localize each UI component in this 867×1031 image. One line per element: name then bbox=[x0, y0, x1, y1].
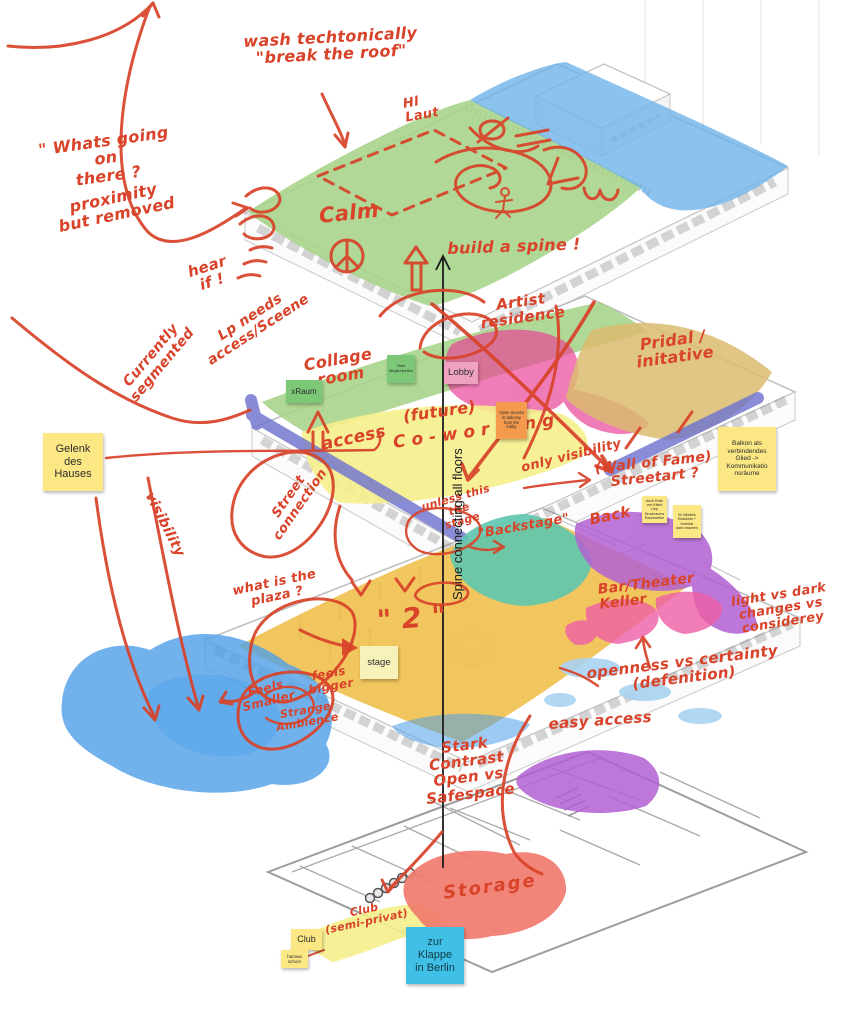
annotation-laut: Hl Laut bbox=[402, 92, 440, 125]
sticky-balkon[interactable]: Balkon als verbindendes Glied -> Kommuni… bbox=[718, 427, 776, 491]
sticky-viele-moeglichkeiten[interactable]: Viele Möglichkeiten bbox=[387, 355, 415, 383]
sticky-note-inventar[interactable]: W. Middels Erlaubnis + Inventar kann mac… bbox=[673, 505, 701, 538]
sticky-hamwa-schon[interactable]: hamwa schon! bbox=[281, 950, 308, 968]
sticky-gelenk-des-hauses[interactable]: Gelenk des Hauses bbox=[43, 433, 103, 491]
sticky-open-access-balcony[interactable]: Open access to balcony from the lobby bbox=[496, 402, 527, 439]
sticky-zur-klappe-in-berlin[interactable]: zur Klappe in Berlin bbox=[406, 927, 464, 984]
sticky-xraum[interactable]: xRaum bbox=[286, 380, 322, 403]
spine-label: Spine connecting all floors bbox=[450, 408, 465, 600]
sticky-stage[interactable]: stage bbox=[360, 646, 398, 679]
annotation-stark-contrast: Stark Contrast Open vs Safespace bbox=[408, 730, 527, 808]
sticky-club[interactable]: Club bbox=[291, 929, 322, 950]
sticky-note-klient[interactable]: Auch Rolle von Klient Liep Druckraums Ra… bbox=[642, 496, 667, 523]
annotation-build-a-spine: build a spine ! bbox=[447, 235, 581, 257]
annotation-big-two: " 2 " bbox=[376, 601, 448, 636]
sticky-lobby[interactable]: Lobby bbox=[444, 362, 478, 384]
whiteboard-canvas: " Whats going on there ? proximity but r… bbox=[0, 0, 867, 1031]
